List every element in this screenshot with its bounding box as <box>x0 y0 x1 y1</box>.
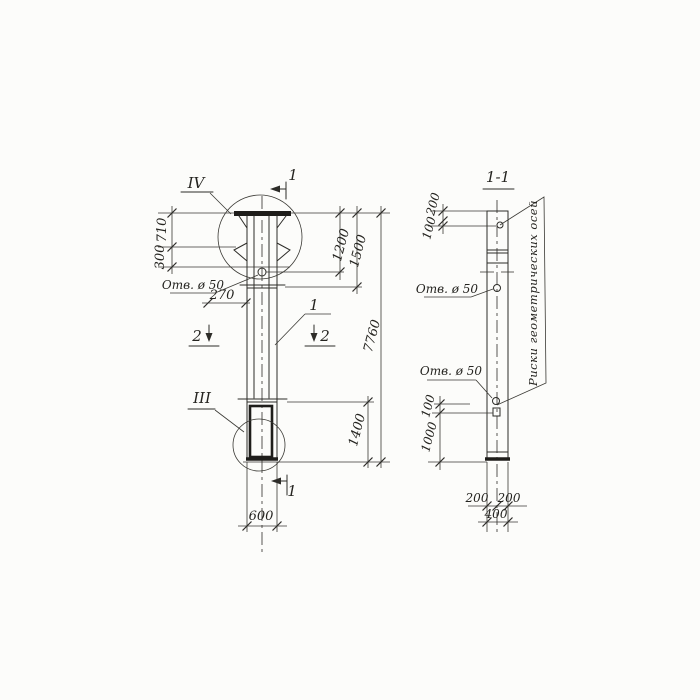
dim-300: 300 <box>153 245 168 270</box>
front-bottom-socket <box>250 406 272 457</box>
detail-circle-IV <box>218 195 302 279</box>
svg-text:2: 2 <box>191 327 202 345</box>
section-title: 1-1 <box>486 168 510 186</box>
section-mark-2-right: 2 <box>305 325 335 346</box>
dim-100-top: 100 <box>419 215 439 241</box>
svg-text:1: 1 <box>287 482 297 500</box>
section-mark-1-bottom: 1 <box>271 475 297 500</box>
dim-710: 710 <box>155 218 170 243</box>
drawing-canvas: 710 300 270 1200 1500 7760 1400 600 Отв.… <box>0 0 700 700</box>
svg-text:Отв. ø 50: Отв. ø 50 <box>416 282 479 296</box>
section-dimension-lines <box>440 204 527 522</box>
detail-label-IV: IV <box>187 174 207 192</box>
front-left-flare <box>234 243 247 261</box>
dim-600: 600 <box>249 509 274 524</box>
section-hole-label-2: Отв. ø 50 <box>420 364 492 398</box>
detail-label-III: III <box>192 389 212 407</box>
front-view: 710 300 270 1200 1500 7760 1400 600 Отв.… <box>153 166 390 556</box>
dim-1400: 1400 <box>346 412 369 448</box>
dim-1000: 1000 <box>418 420 440 453</box>
front-top-plate <box>234 211 291 216</box>
svg-text:2: 2 <box>319 327 330 345</box>
front-right-flare <box>277 243 290 261</box>
detail-IV-leader <box>210 193 231 214</box>
svg-text:1: 1 <box>309 296 319 314</box>
dim-400: 400 <box>484 507 508 521</box>
dim-200-right: 200 <box>497 491 521 505</box>
axis-note: Риски геометрических осей <box>526 200 540 387</box>
dim-200-left: 200 <box>465 491 489 505</box>
front-hole-label: Отв. ø 50 <box>162 278 225 292</box>
section-hole-bottom <box>493 398 500 405</box>
detail-III-leader <box>215 410 244 432</box>
section-view: 1-1 Риски геометрических осей <box>416 168 546 532</box>
svg-text:Отв. ø 50: Отв. ø 50 <box>420 364 483 378</box>
section-hole-label-1: Отв. ø 50 <box>416 282 493 297</box>
section-axis-mark <box>493 408 500 416</box>
dim-100-bottom: 100 <box>418 393 438 419</box>
section-mark-1-top: 1 <box>270 166 298 199</box>
svg-text:1: 1 <box>288 166 298 184</box>
section-mark-2-left: 2 <box>189 325 219 346</box>
